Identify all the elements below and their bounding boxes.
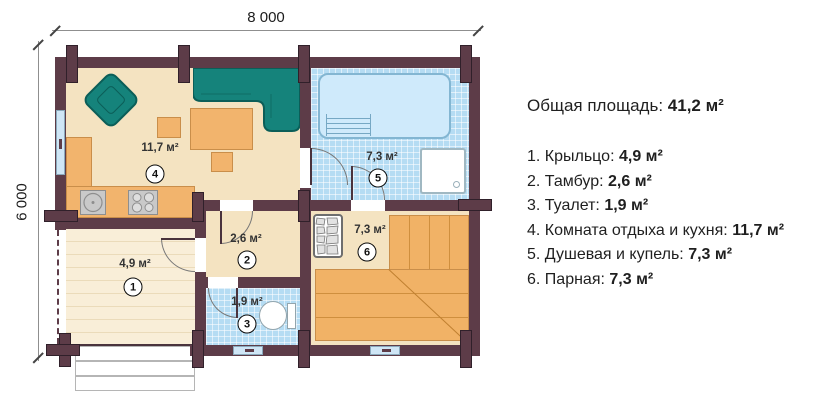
door-opening-5-6 <box>351 200 385 211</box>
log-stub <box>46 344 80 356</box>
window <box>370 346 400 355</box>
door-opening-4-2 <box>220 200 253 211</box>
legend-item-label: 3. Туалет: <box>527 197 600 214</box>
log-stub <box>460 45 472 83</box>
shower-drain <box>453 181 460 188</box>
porch-step <box>75 361 195 376</box>
door-opening-2-3 <box>208 277 238 288</box>
sauna-stove <box>313 214 343 258</box>
legend-item: 5. Душевая и купель: 7,3 м² <box>527 243 827 268</box>
legend-item-value: 11,7 м² <box>732 222 784 239</box>
room-6-area-label: 7,3 м² <box>354 224 386 236</box>
pool-ladder <box>326 114 371 136</box>
wall-outer-top <box>55 57 480 68</box>
window-frame <box>382 349 391 352</box>
floor-plan: 8 000 6 000 <box>0 0 510 404</box>
legend-item-label: 2. Тамбур: <box>527 173 604 190</box>
legend-item-value: 1,9 м² <box>604 197 648 214</box>
porch-step <box>75 376 195 391</box>
dining-table <box>190 108 253 150</box>
legend-item: 4. Комната отдыха и кухня: 11,7 м² <box>527 219 827 244</box>
legend-item-value: 7,3 м² <box>609 271 653 288</box>
armchair-cushion <box>95 84 126 115</box>
room-1-number-badge: 1 <box>124 278 143 297</box>
log-stub <box>458 199 492 211</box>
total-area-line: Общая площадь: 41,2 м² <box>527 96 827 116</box>
room-4-number-badge: 4 <box>146 165 165 184</box>
log-stub <box>298 45 310 83</box>
legend-item: 3. Туалет: 1,9 м² <box>527 194 827 219</box>
door-leaf <box>310 148 312 185</box>
room-2-area-label: 2,6 м² <box>230 233 262 245</box>
dimension-line-left <box>38 41 39 361</box>
legend-item: 6. Парная: 7,3 м² <box>527 268 827 293</box>
door-leaf <box>161 238 195 240</box>
room-5-area-label: 7,3 м² <box>366 151 398 163</box>
log-stub <box>66 45 78 83</box>
total-area-label: Общая площадь: <box>527 96 663 115</box>
legend-item-label: 6. Парная: <box>527 271 605 288</box>
log-stub <box>44 210 78 222</box>
window <box>233 346 263 355</box>
total-area-value: 41,2 м² <box>668 96 724 115</box>
log-stub <box>192 330 204 368</box>
window-frame <box>245 349 254 352</box>
porch-open-edge <box>57 230 59 344</box>
legend-item: 1. Крыльцо: 4,9 м² <box>527 145 827 170</box>
log-stub <box>178 45 190 83</box>
room-1-area-label: 4,9 м² <box>119 258 151 270</box>
legend-item-label: 1. Крыльцо: <box>527 148 615 165</box>
legend-item-label: 5. Душевая и купель: <box>527 246 684 263</box>
chair <box>157 117 181 138</box>
door-leaf <box>220 211 222 244</box>
legend: Общая площадь: 41,2 м² 1. Крыльцо: 4,9 м… <box>527 96 827 292</box>
legend-item-value: 4,9 м² <box>619 148 663 165</box>
room-6-number-badge: 6 <box>358 243 377 262</box>
legend-item-value: 2,6 м² <box>608 173 652 190</box>
log-stub <box>192 192 204 222</box>
shower-tray <box>420 148 466 194</box>
room-3-number-badge: 3 <box>238 315 257 334</box>
dimension-label-left: 6 000 <box>14 183 31 221</box>
log-stub <box>460 330 472 368</box>
log-stub <box>298 330 310 368</box>
cooktop <box>128 190 158 215</box>
window <box>56 110 65 175</box>
window-frame <box>59 139 62 149</box>
porch-step <box>75 346 195 361</box>
dimension-line-top <box>52 30 481 31</box>
room-5-number-badge: 5 <box>369 169 388 188</box>
sauna-bench-bottom <box>315 269 469 341</box>
room-3-area-label: 1,9 м² <box>231 296 263 308</box>
toilet-tank <box>287 303 296 329</box>
log-stub <box>298 190 310 222</box>
kitchen-sink <box>80 190 106 215</box>
chair <box>211 152 233 172</box>
legend-item: 2. Тамбур: 2,6 м² <box>527 170 827 195</box>
room-4-area-label: 11,7 м² <box>141 142 178 154</box>
legend-item-value: 7,3 м² <box>688 246 732 263</box>
door-leaf <box>351 166 353 200</box>
door-opening-entrance <box>195 238 206 272</box>
room-2-number-badge: 2 <box>238 251 257 270</box>
legend-item-label: 4. Комната отдыха и кухня: <box>527 222 728 239</box>
dimension-label-top: 8 000 <box>247 9 285 26</box>
